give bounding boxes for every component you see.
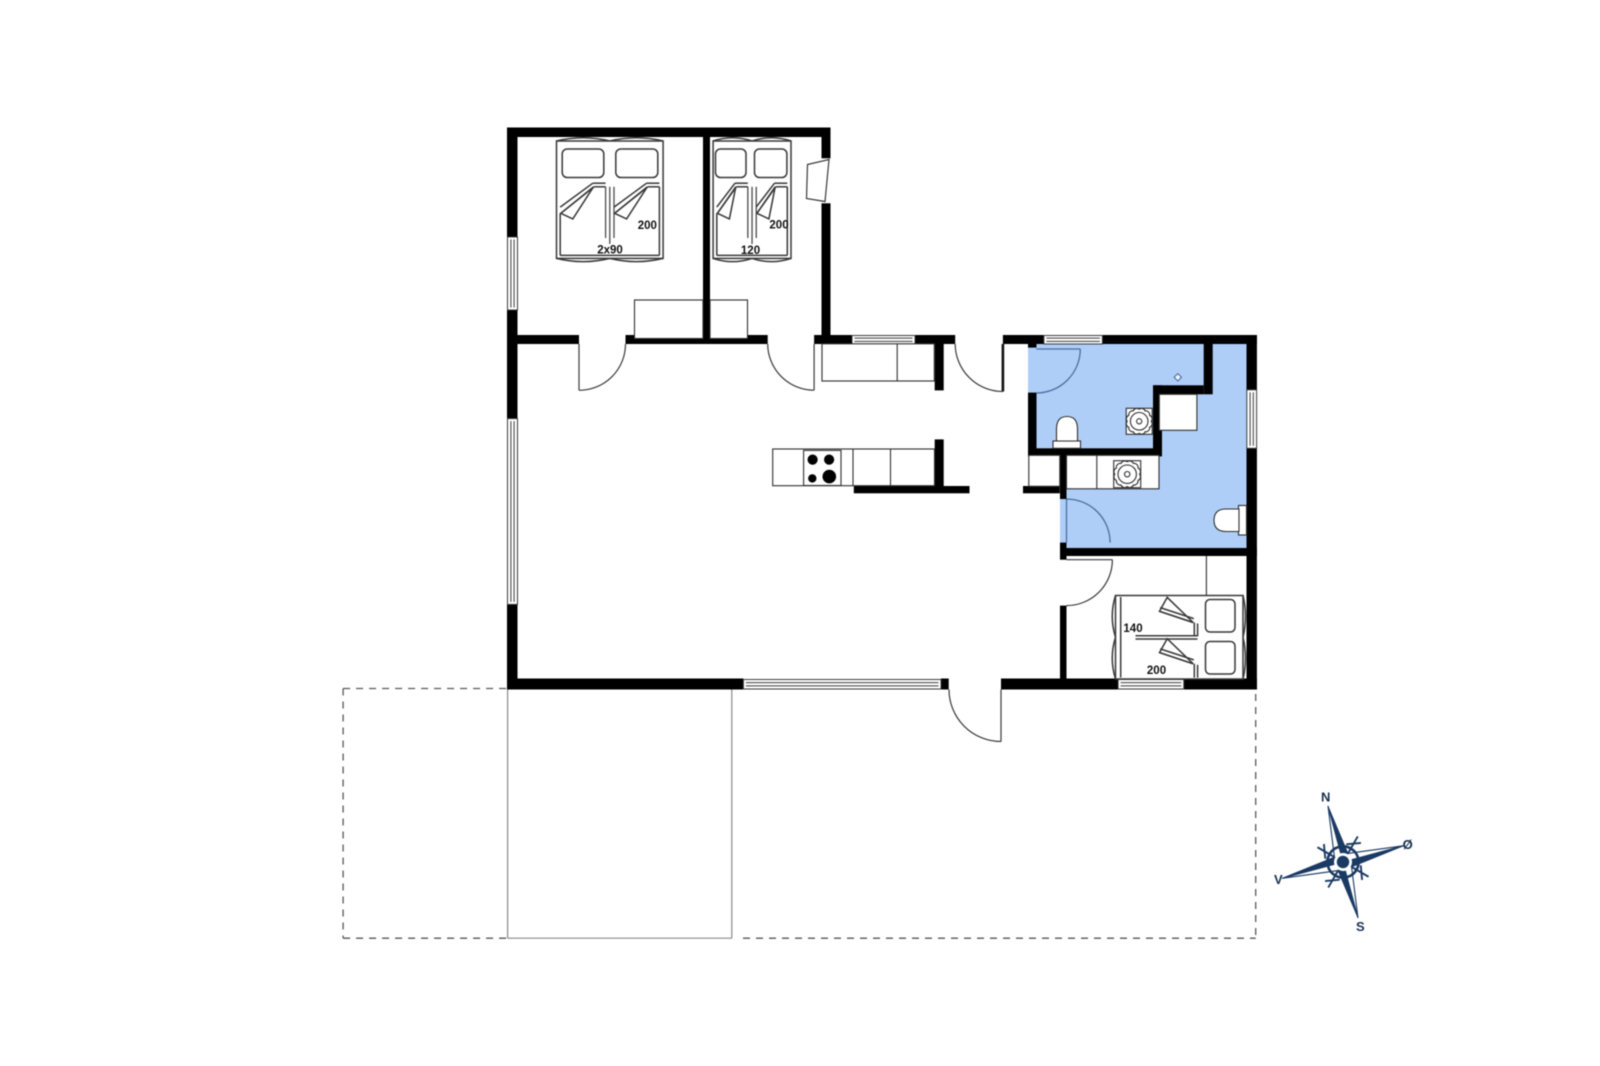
svg-text:S: S (1356, 919, 1365, 934)
svg-text:2x90: 2x90 (597, 244, 623, 256)
svg-text:200: 200 (638, 220, 657, 232)
svg-text:200: 200 (1147, 665, 1166, 677)
svg-text:200: 200 (769, 220, 788, 232)
svg-text:120: 120 (741, 245, 760, 257)
svg-text:V: V (1274, 872, 1283, 887)
svg-text:140: 140 (1123, 623, 1142, 635)
svg-text:N: N (1321, 789, 1330, 804)
svg-text:Ø: Ø (1403, 837, 1413, 852)
